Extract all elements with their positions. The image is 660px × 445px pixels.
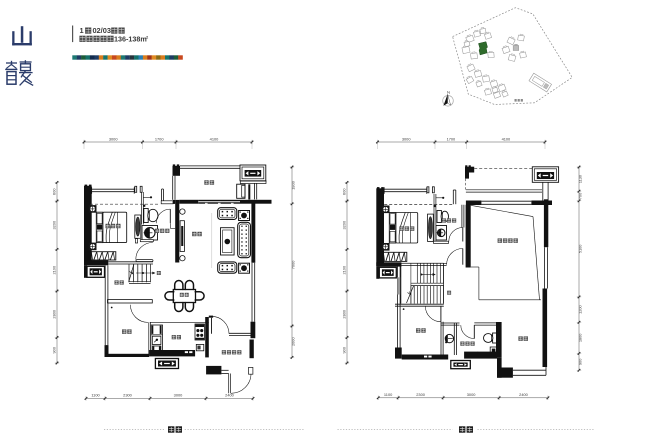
svg-text:3000: 3000 bbox=[109, 136, 118, 141]
svg-text:1800: 1800 bbox=[578, 333, 583, 342]
svg-text:700: 700 bbox=[578, 192, 583, 199]
svg-text:600: 600 bbox=[342, 188, 347, 195]
svg-text:2800: 2800 bbox=[52, 309, 57, 318]
svg-text:02/03: 02/03 bbox=[92, 26, 111, 35]
svg-text:1130: 1130 bbox=[578, 174, 583, 183]
svg-text:3200: 3200 bbox=[52, 220, 57, 229]
svg-text:1: 1 bbox=[79, 26, 83, 35]
svg-text:136-138m: 136-138m bbox=[114, 35, 147, 44]
svg-text:900: 900 bbox=[342, 346, 347, 353]
svg-text:4100: 4100 bbox=[502, 136, 511, 141]
svg-text:900: 900 bbox=[578, 358, 583, 365]
svg-text:2100: 2100 bbox=[342, 265, 347, 274]
svg-text:4100: 4100 bbox=[210, 136, 219, 141]
svg-text:3200: 3200 bbox=[342, 220, 347, 229]
svg-text:1700: 1700 bbox=[447, 136, 456, 141]
svg-text:1200: 1200 bbox=[578, 304, 583, 313]
svg-text:3000: 3000 bbox=[402, 136, 411, 141]
svg-text:1100: 1100 bbox=[91, 393, 100, 398]
svg-text:2000: 2000 bbox=[291, 337, 296, 346]
svg-text:2100: 2100 bbox=[52, 265, 57, 274]
svg-text:2800: 2800 bbox=[342, 309, 347, 318]
svg-text:900: 900 bbox=[52, 346, 57, 353]
svg-text:2300: 2300 bbox=[416, 392, 425, 397]
svg-text:1800: 1800 bbox=[291, 180, 296, 189]
svg-text:2400: 2400 bbox=[519, 392, 528, 397]
svg-text:7000: 7000 bbox=[291, 260, 296, 269]
svg-text:3000: 3000 bbox=[467, 392, 476, 397]
svg-text:1100: 1100 bbox=[384, 392, 393, 397]
svg-text:2300: 2300 bbox=[123, 393, 132, 398]
svg-text:5100: 5100 bbox=[578, 244, 583, 253]
svg-text:1700: 1700 bbox=[155, 136, 164, 141]
svg-text:600: 600 bbox=[52, 188, 57, 195]
svg-text:3000: 3000 bbox=[174, 393, 183, 398]
